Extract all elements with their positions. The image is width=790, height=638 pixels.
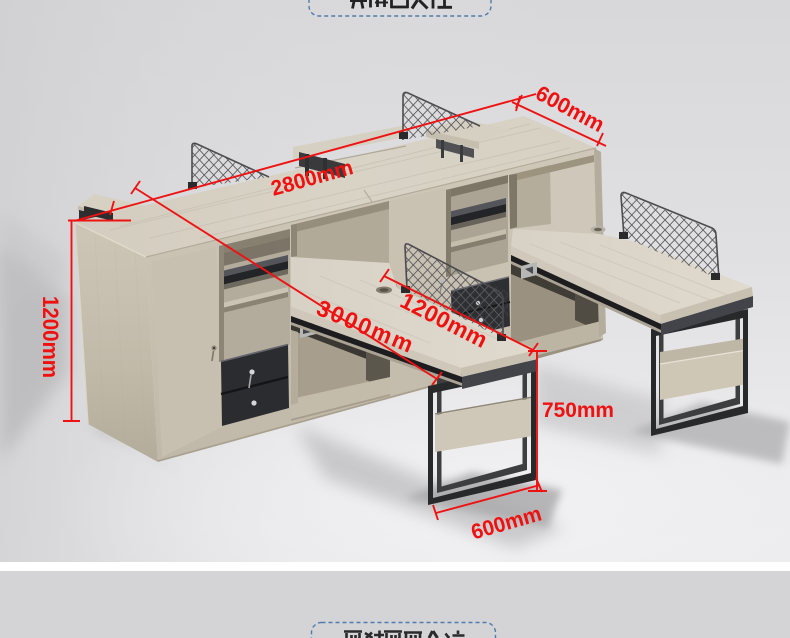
svg-text:750mm: 750mm [542, 398, 614, 422]
svg-text:1200mm: 1200mm [38, 296, 63, 378]
